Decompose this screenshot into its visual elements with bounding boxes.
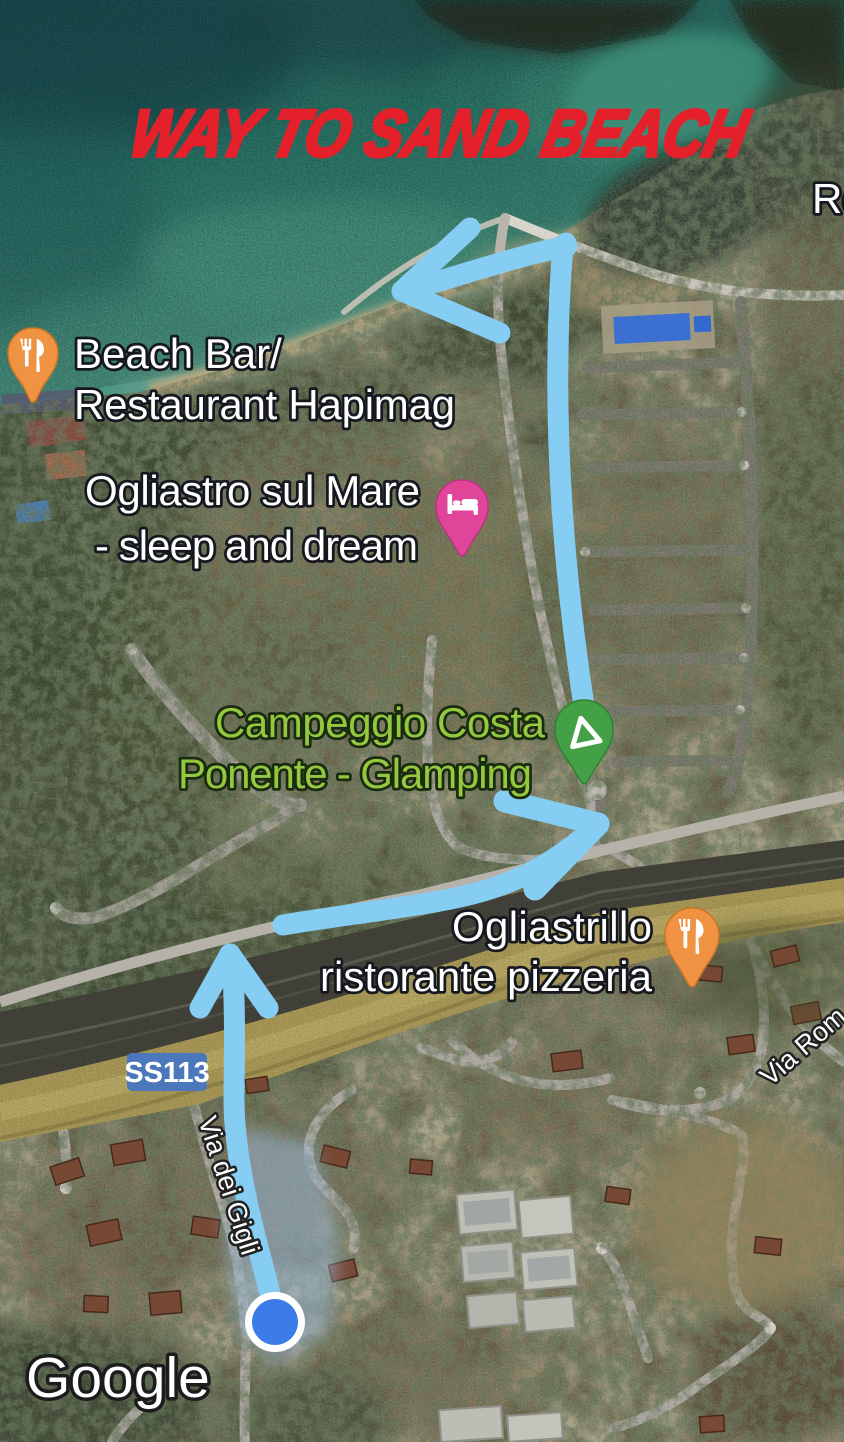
- svg-text:Ponente - Glamping: Ponente - Glamping: [178, 750, 532, 797]
- svg-text:Ogliastrillo: Ogliastrillo: [452, 903, 652, 950]
- svg-text:Ogliastro sul Mare: Ogliastro sul Mare: [85, 467, 420, 514]
- svg-text:Beach Bar/: Beach Bar/: [74, 330, 282, 377]
- svg-text:Campeggio Costa: Campeggio Costa: [215, 699, 546, 746]
- svg-text:WAY TO SAND BEACH: WAY TO SAND BEACH: [124, 96, 757, 170]
- svg-text:Re: Re: [812, 175, 844, 222]
- svg-text:Restaurant Hapimag: Restaurant Hapimag: [74, 381, 455, 428]
- svg-text:SS113: SS113: [124, 1057, 209, 1089]
- svg-text:- sleep and dream: - sleep and dream: [95, 522, 418, 569]
- svg-text:Google: Google: [26, 1346, 210, 1410]
- svg-text:ristorante pizzeria: ristorante pizzeria: [320, 953, 653, 1000]
